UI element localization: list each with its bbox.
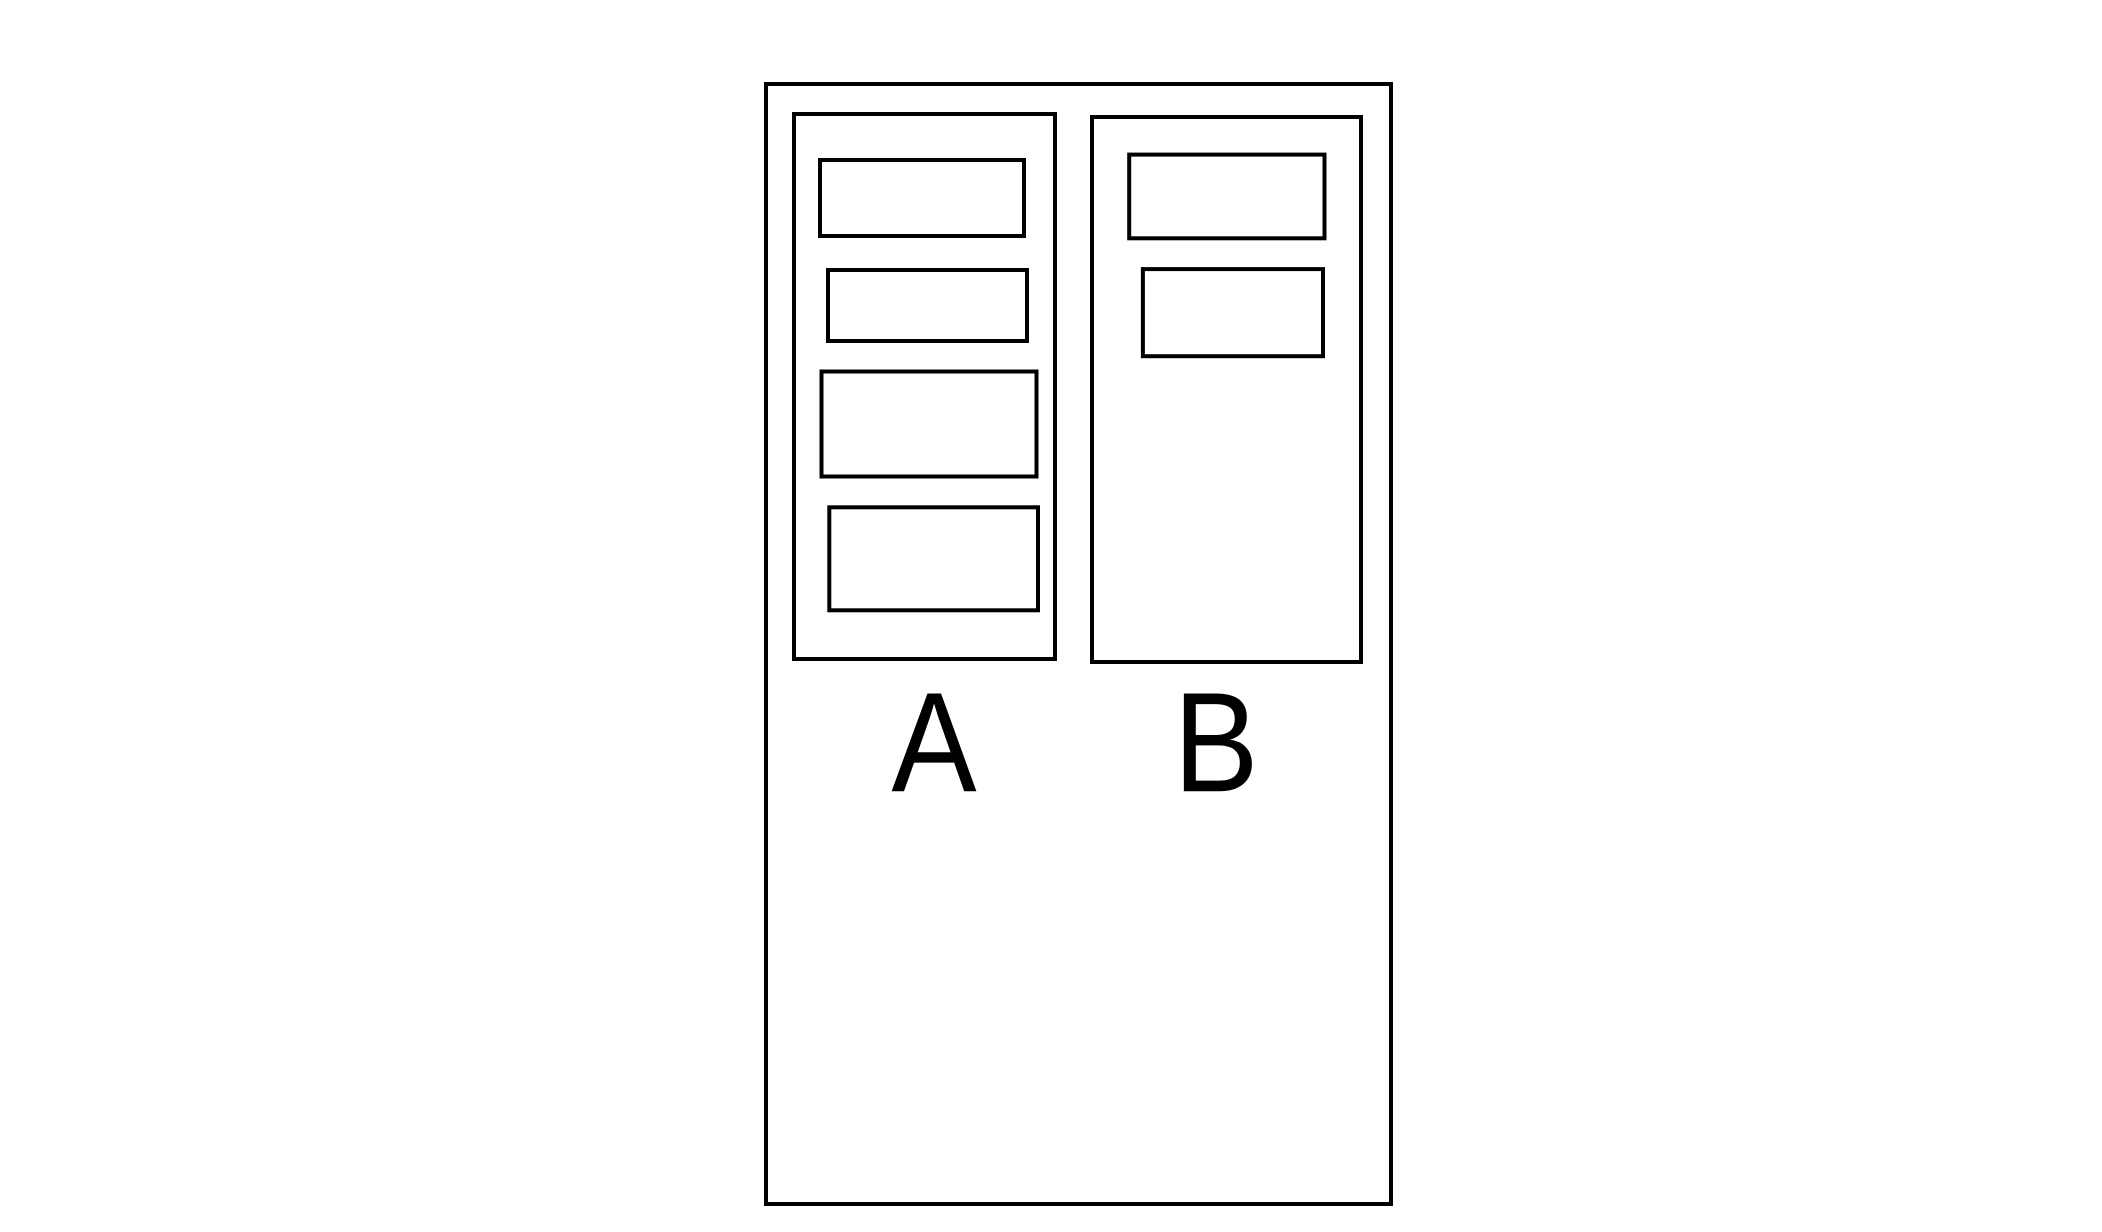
svg-text:B: B: [1173, 663, 1258, 822]
svg-text:A: A: [891, 663, 976, 822]
